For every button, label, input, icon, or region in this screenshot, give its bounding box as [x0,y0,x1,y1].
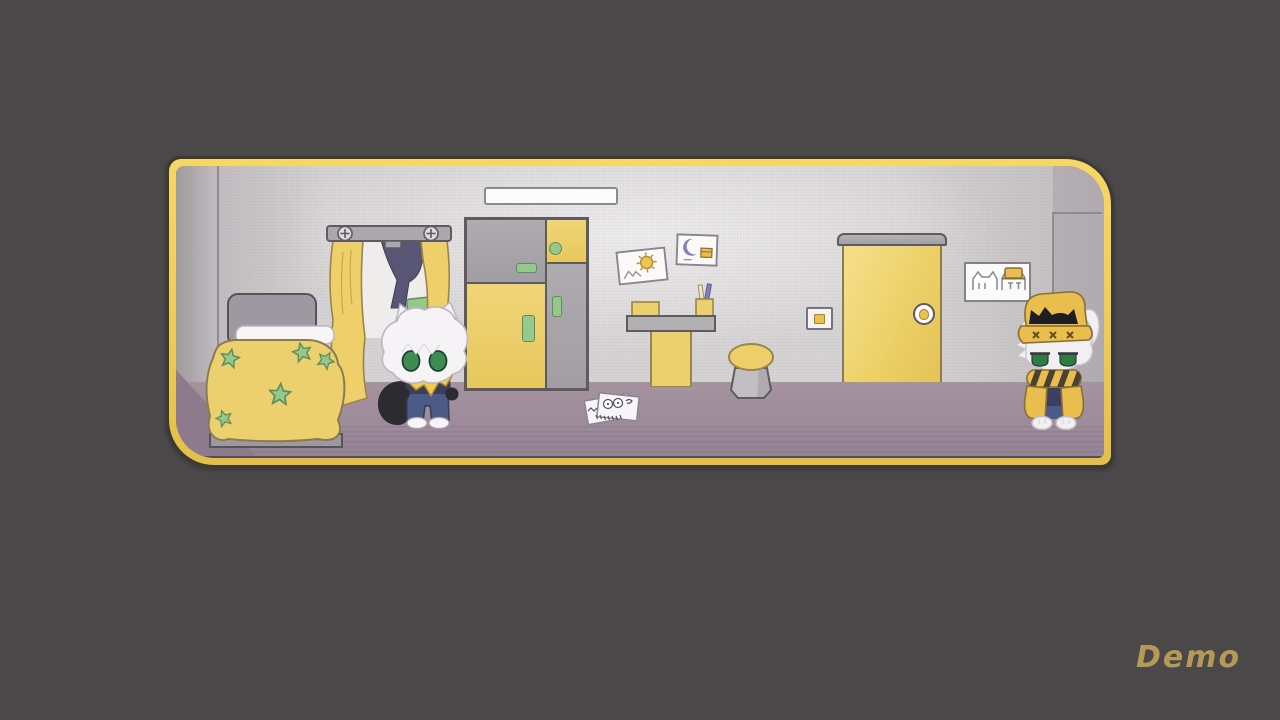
stool-seat [729,344,773,370]
desk-leg [651,331,691,387]
pen [705,284,712,300]
light-switch-button[interactable] [814,314,825,324]
wardrobe-door-bottom-right[interactable] [546,263,587,389]
paw-left [1032,417,1052,430]
desk-top [627,316,715,331]
door-handle[interactable] [913,303,935,325]
ceiling-light [484,187,618,205]
floor-papers[interactable] [582,387,644,427]
wardrobe-knob [549,242,562,255]
hand [397,388,410,401]
game-frame-gold-border [169,159,1111,465]
stool [727,342,775,400]
wardrobe-door-top-left[interactable] [466,219,546,283]
eye-left [1032,354,1048,366]
poster-sun [615,246,668,285]
rod-screw-right [424,227,438,241]
right-wall-ceiling-line [1052,212,1102,214]
eye-left [403,351,420,371]
door-handle-pin [919,309,929,320]
shoe [407,418,427,429]
wardrobe[interactable] [464,217,589,391]
paw-right [1056,417,1076,430]
character-left[interactable] [372,302,477,430]
rod-screw-left [338,227,352,241]
shoe [429,418,449,429]
wardrobe-handle-1 [516,263,537,273]
desk [625,283,717,387]
character-right[interactable] [1012,288,1100,430]
jacket-left [1025,386,1047,420]
door[interactable] [837,233,947,384]
game-frame [166,156,1114,468]
game-viewport [176,166,1104,458]
bucket-hat-brim [1018,326,1092,343]
pencil [698,285,704,300]
cat-hat-doodle [1005,268,1022,278]
jacket-right [1061,386,1083,420]
desk-box [632,302,659,316]
light-switch[interactable] [806,307,833,330]
door-top-rail [837,233,947,246]
demo-watermark: Demo [1136,640,1256,675]
sun-doodle [640,256,653,269]
wardrobe-handle-3 [552,296,562,317]
pencil-cup [696,299,713,316]
wardrobe-door-top-right[interactable] [546,219,587,263]
hand [446,388,459,401]
poster-moon [675,233,718,266]
bed [198,288,350,450]
wardrobe-handle-2 [522,315,535,342]
eye-right [1060,354,1076,366]
